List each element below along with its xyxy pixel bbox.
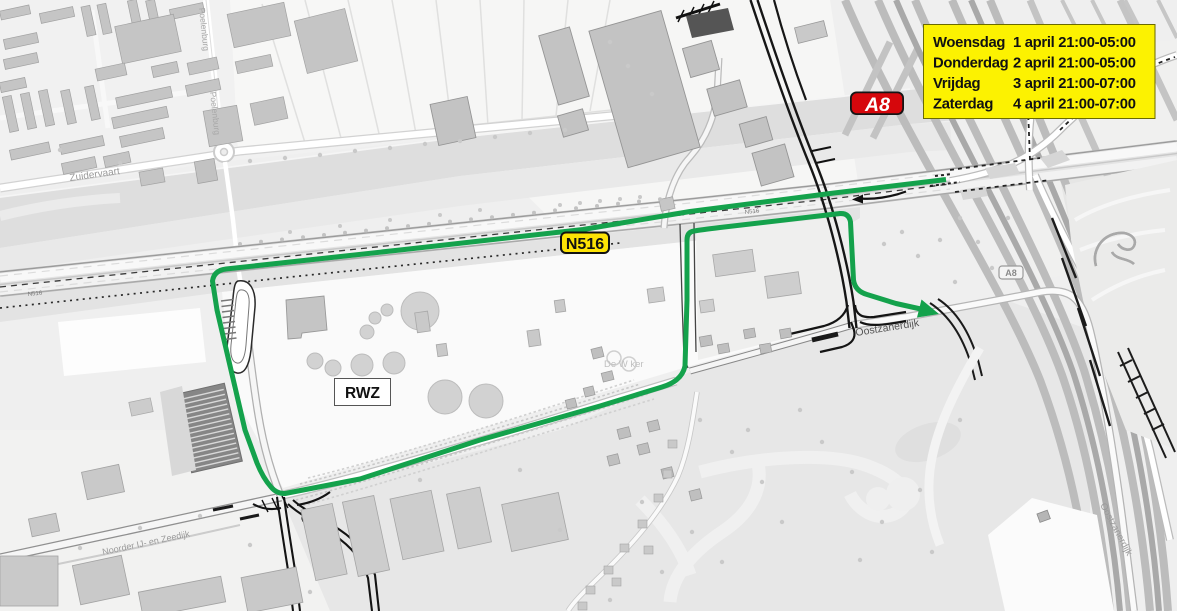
svg-text:A8: A8 (1005, 268, 1017, 278)
svg-text:2 april 21:00-05:00: 2 april 21:00-05:00 (1013, 56, 1136, 72)
svg-text:3 april 21:00-07:00: 3 april 21:00-07:00 (1013, 76, 1136, 92)
svg-text:Vrijdag: Vrijdag (933, 76, 981, 92)
svg-text:Woensdag: Woensdag (933, 35, 1005, 51)
svg-text:Zaterdag: Zaterdag (933, 97, 993, 113)
svg-text:A8: A8 (864, 94, 890, 116)
svg-text:De W ker: De W ker (604, 359, 644, 370)
svg-text:Donderdag: Donderdag (933, 56, 1009, 72)
svg-text:N516: N516 (566, 236, 604, 253)
svg-text:4 april 21:00-07:00: 4 april 21:00-07:00 (1013, 97, 1136, 113)
svg-text:RWZ: RWZ (345, 385, 381, 402)
svg-text:1 april 21:00-05:00: 1 april 21:00-05:00 (1013, 35, 1136, 51)
